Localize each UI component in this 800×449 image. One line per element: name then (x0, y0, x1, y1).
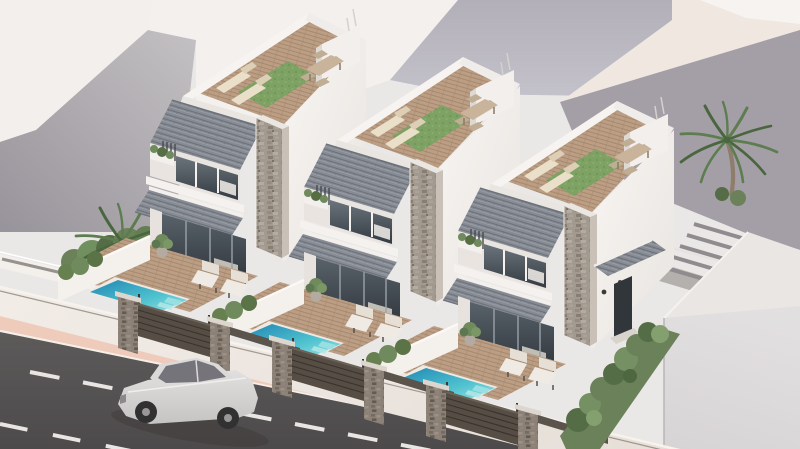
entry-door (614, 276, 632, 338)
building-right-face (664, 306, 800, 449)
porch-lamp-icon (602, 290, 607, 295)
architectural-render (0, 0, 800, 449)
render-canvas (0, 0, 800, 449)
